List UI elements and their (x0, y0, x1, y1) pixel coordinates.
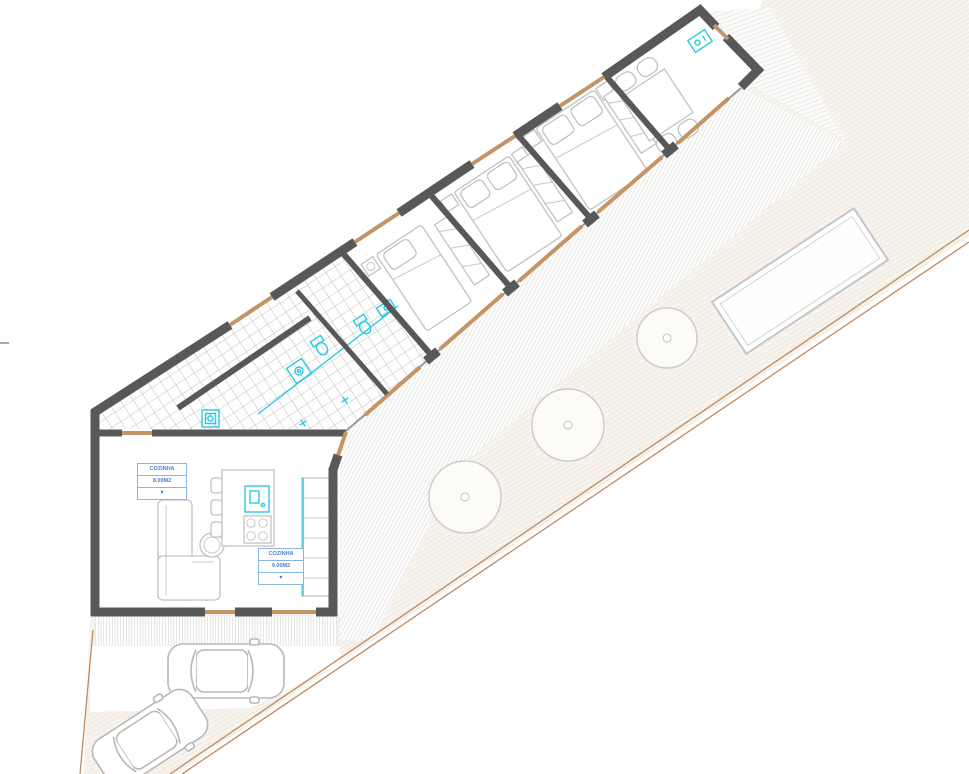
driveway-paving (95, 616, 337, 645)
plan-svg (0, 0, 969, 774)
shelving-unit (302, 478, 332, 596)
tree (637, 308, 697, 368)
floor-plan-page: COZINHA 8.00M2 ▼ COZINHA 9.00M2 ▼ (0, 0, 969, 774)
kitchen-island (211, 470, 274, 546)
room-label-marker: ▼ (138, 487, 186, 499)
room-label-name: COZINHA (138, 464, 186, 475)
room-label-area: 8.00M2 (138, 475, 186, 487)
room-label: COZINHA 8.00M2 ▼ (137, 463, 187, 500)
room-label-marker: ▼ (259, 572, 303, 584)
tree (532, 389, 604, 461)
room-label: COZINHA 9.00M2 ▼ (258, 548, 304, 585)
room-label-area: 9.00M2 (259, 560, 303, 572)
tree (429, 461, 501, 533)
stove-icon (244, 516, 271, 543)
room-label-name: COZINHA (259, 549, 303, 560)
